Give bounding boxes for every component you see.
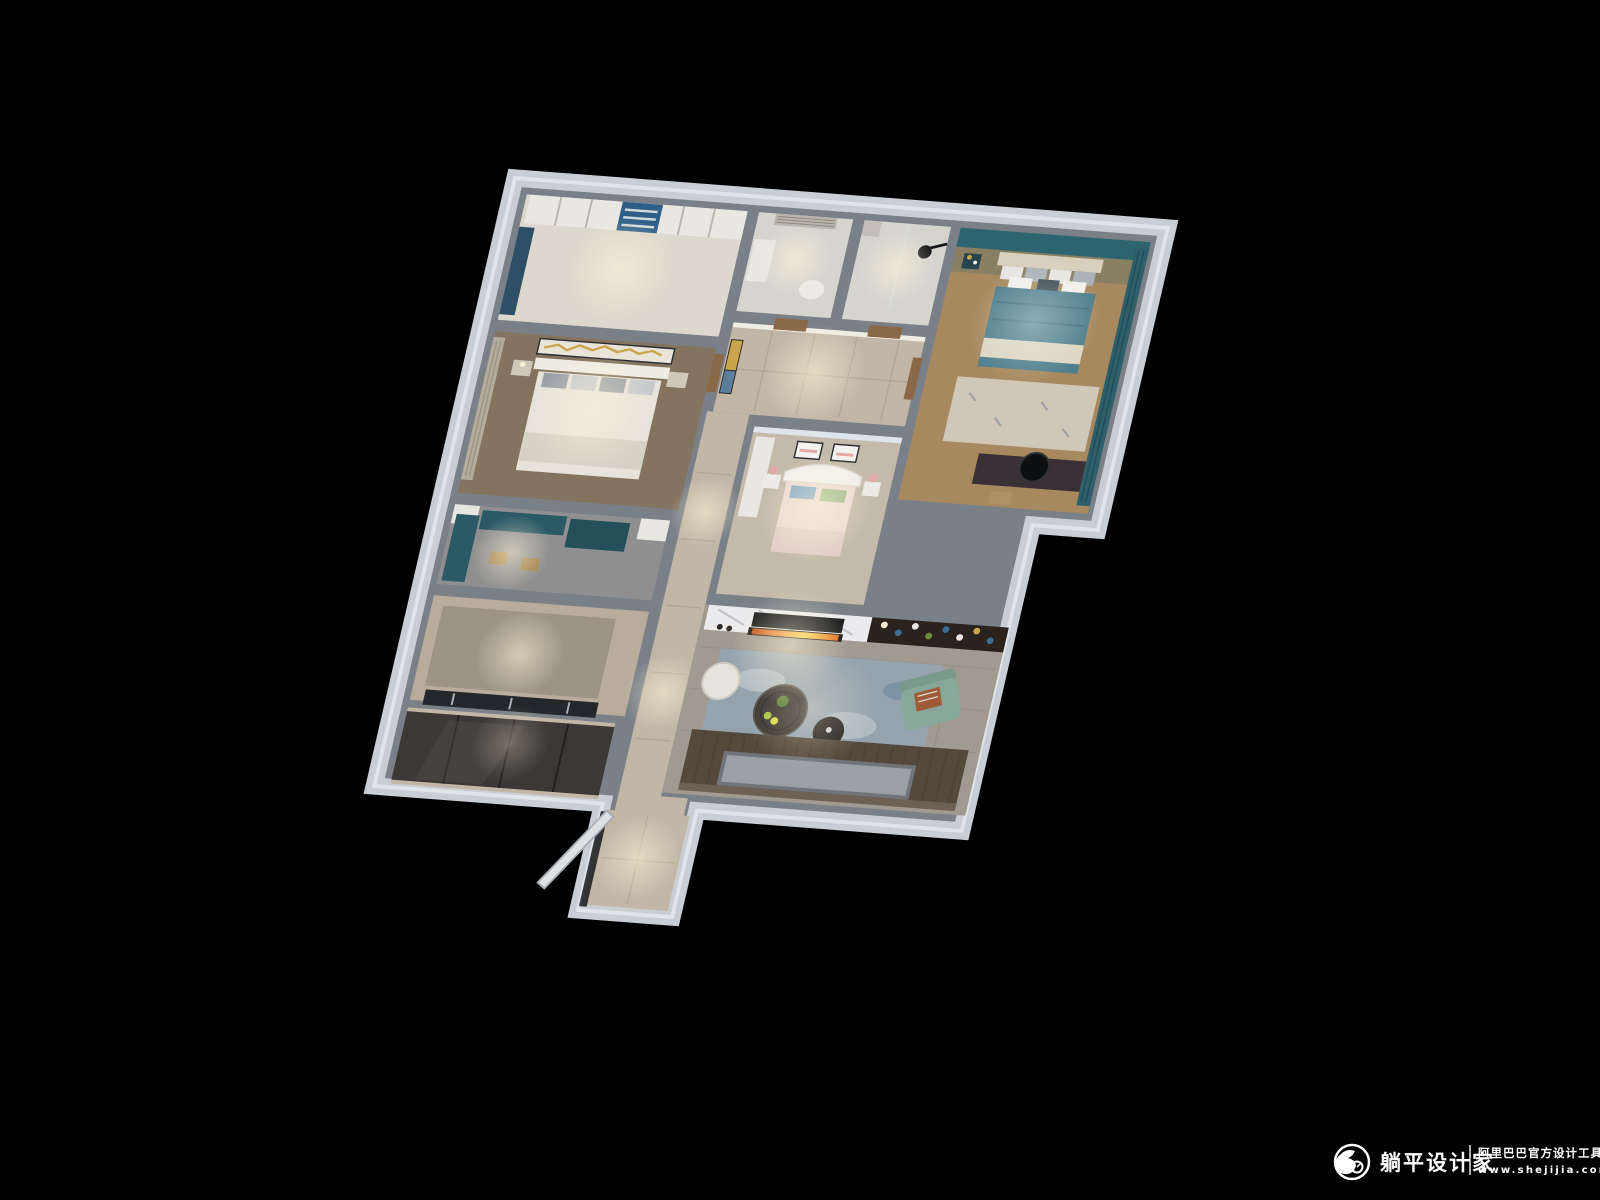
master-nightstand [961,253,982,270]
floorplan-3d-render[interactable]: 躺平设计家 阿里巴巴官方设计工具 www.shejijia.com [0,0,1600,1200]
wood-dressing-stool [989,491,1013,505]
bath-niche [861,220,882,237]
master-rug [943,376,1100,451]
watermark-tagline: 阿里巴巴官方设计工具 [1478,1146,1600,1160]
watermark-url: www.shejijia.com [1478,1165,1600,1176]
room-bedroom-west [458,331,716,509]
room-cloakroom [498,194,748,336]
nightstand-right [666,372,689,389]
room-kitchen [409,595,649,720]
study-light-column-right [637,518,671,541]
teal-cabinet [564,519,630,552]
render-canvas: 躺平设计家 阿里巴巴官方设计工具 www.shejijia.com [0,0,1600,1200]
